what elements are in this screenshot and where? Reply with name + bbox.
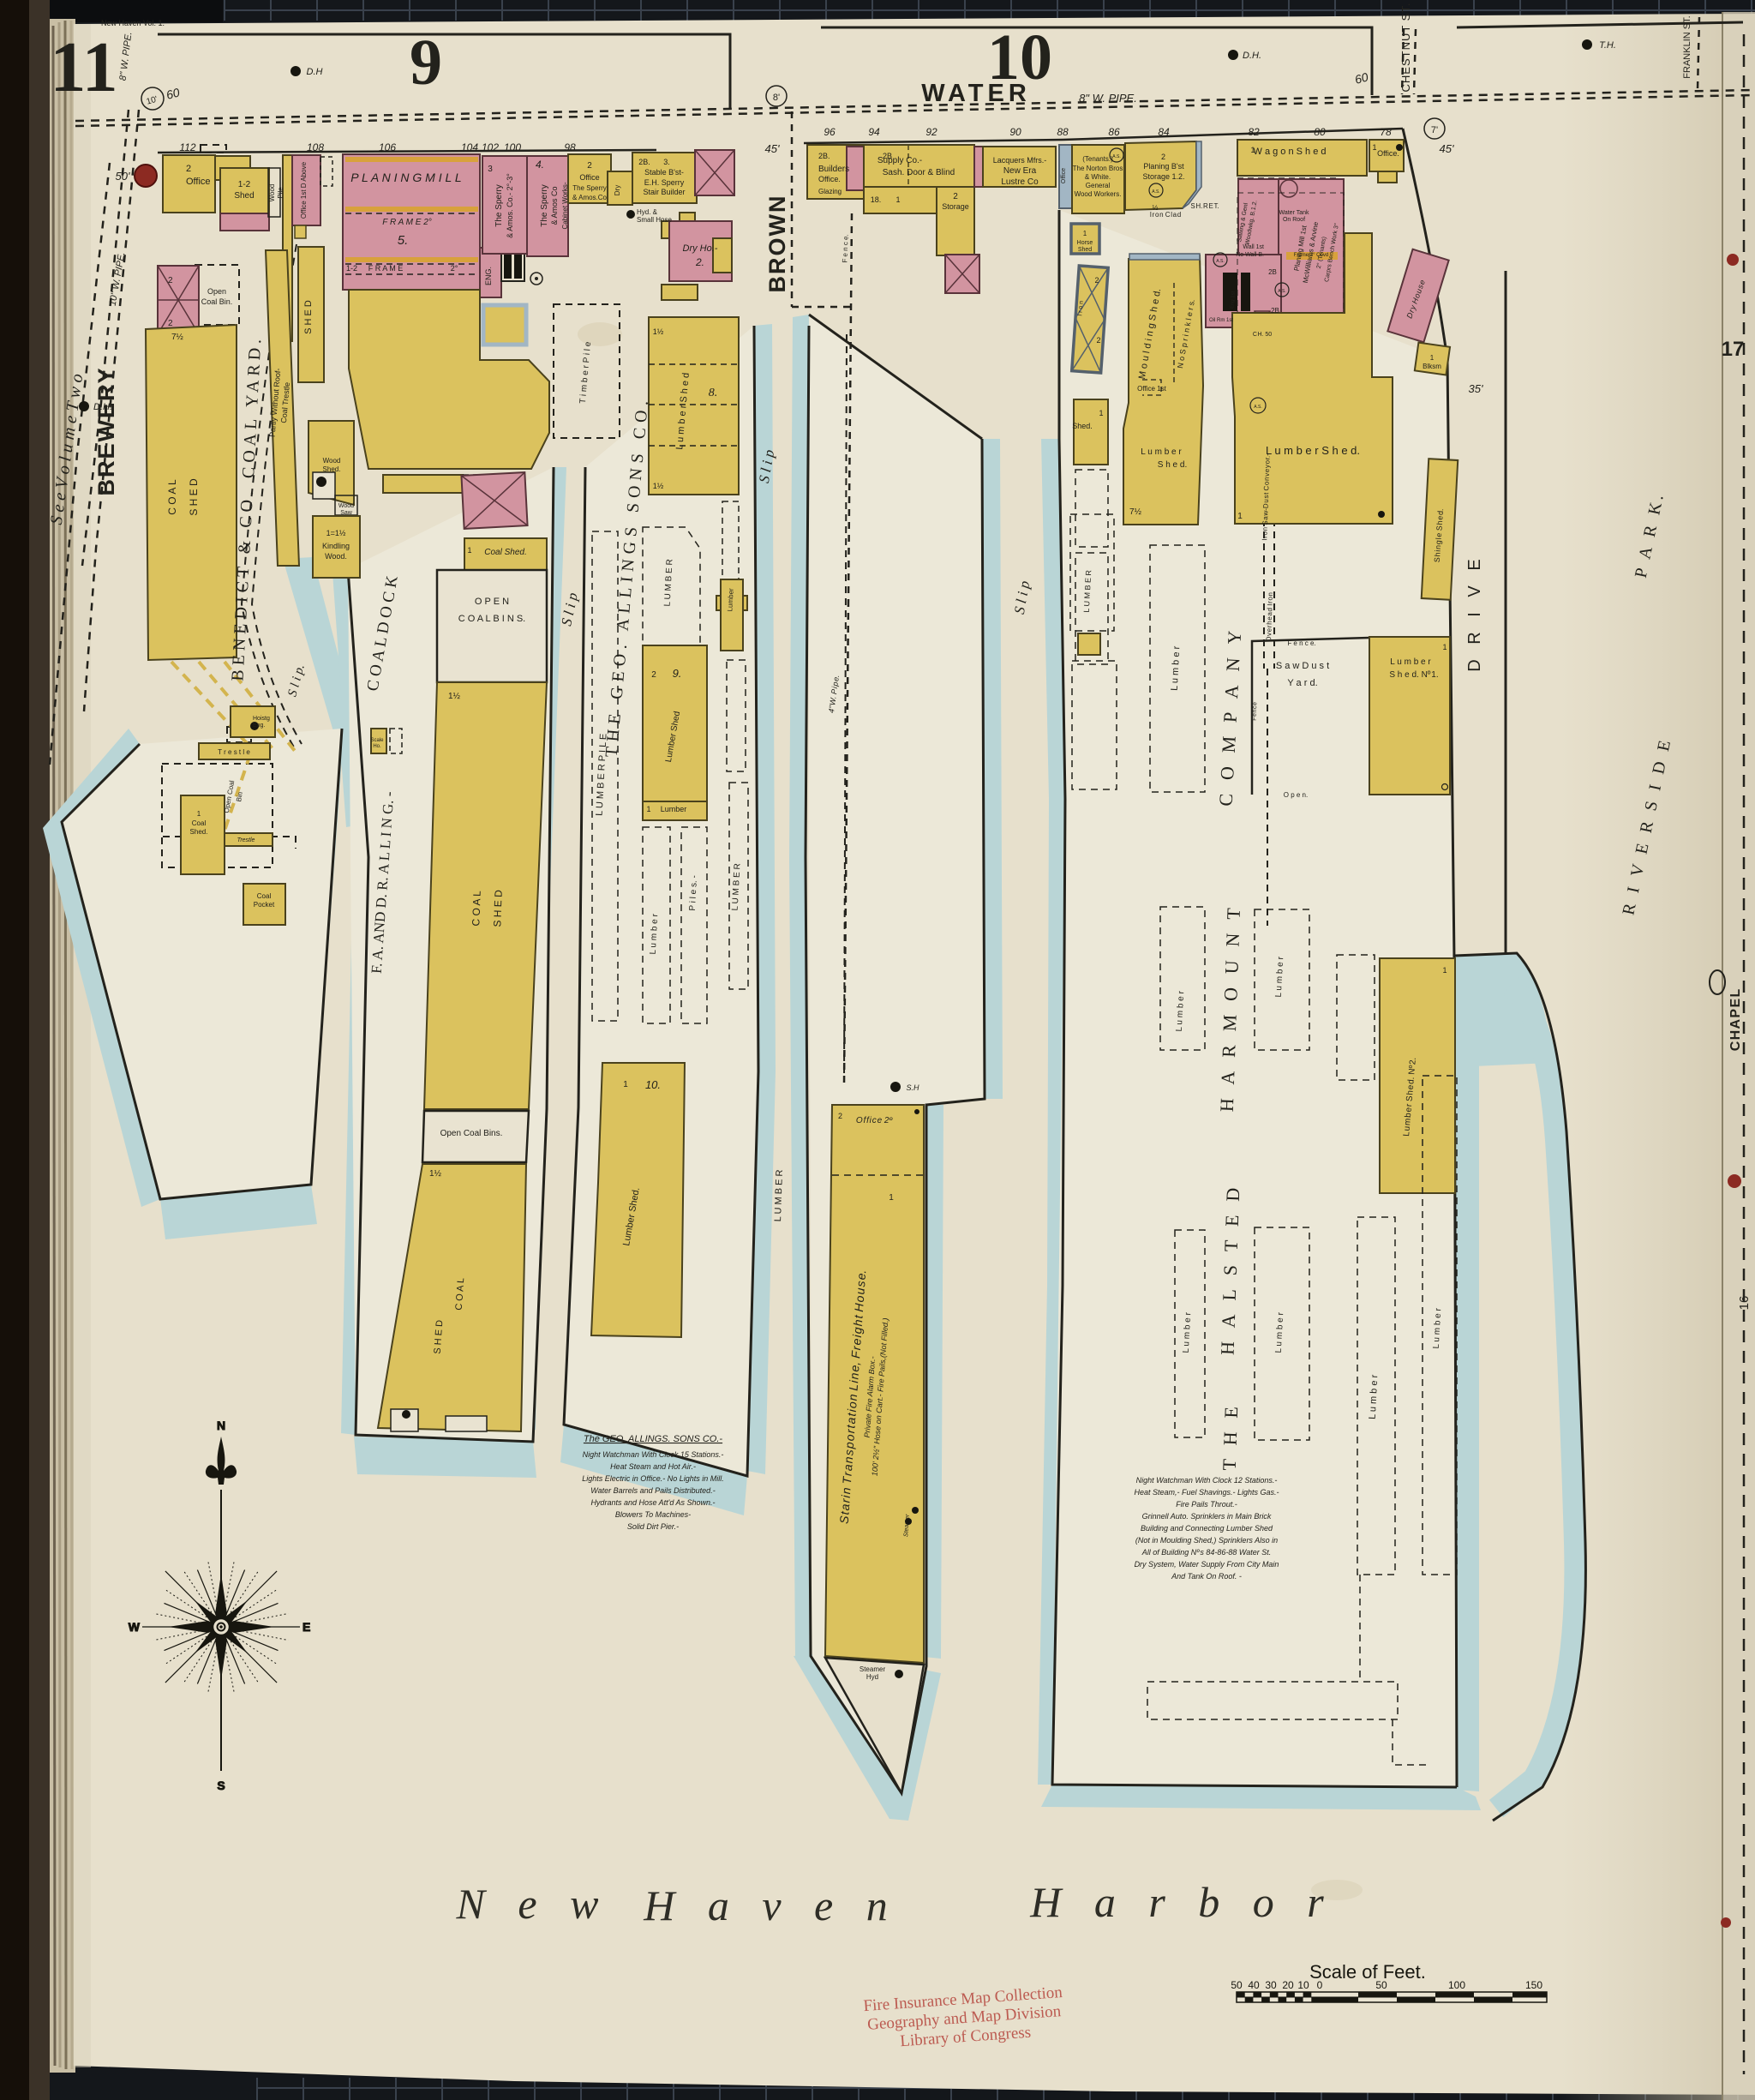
svg-text:Building and Connecting Lumber: Building and Connecting Lumber Shed — [1141, 1524, 1273, 1533]
svg-text:BREWERY: BREWERY — [93, 366, 119, 495]
svg-text:2.: 2. — [695, 256, 704, 268]
svg-text:8': 8' — [773, 93, 780, 103]
svg-text:1: 1 — [623, 1080, 628, 1089]
svg-text:Office 1st D Above: Office 1st D Above — [300, 161, 308, 219]
svg-text:30: 30 — [1265, 1979, 1277, 1991]
svg-text:Wood: Wood — [268, 184, 276, 202]
svg-text:Water Barrels and Pails Distri: Water Barrels and Pails Distributed.- — [590, 1486, 715, 1495]
svg-text:Shed.: Shed. — [190, 828, 208, 836]
svg-text:2: 2 — [168, 276, 173, 285]
svg-text:112: 112 — [179, 141, 195, 153]
svg-text:C O A L: C O A L — [166, 479, 178, 515]
svg-text:Glazing: Glazing — [818, 188, 842, 195]
svg-text:Office.: Office. — [1377, 149, 1399, 158]
svg-text:1½: 1½ — [429, 1169, 442, 1179]
svg-text:1: 1 — [1430, 354, 1435, 362]
svg-text:T r e s t l e: T r e s t l e — [218, 748, 250, 756]
svg-text:82: 82 — [1248, 126, 1260, 138]
svg-text:1: 1 — [1099, 409, 1103, 417]
svg-text:F R A M E: F R A M E — [368, 264, 404, 273]
svg-text:2: 2 — [1161, 153, 1165, 161]
svg-text:100: 100 — [504, 141, 521, 153]
svg-text:(Tenants.): (Tenants.) — [1082, 155, 1113, 163]
svg-text:Shed.: Shed. — [1072, 422, 1093, 430]
svg-text:Horse: Horse — [1077, 240, 1093, 246]
svg-text:C H. 50: C H. 50 — [1253, 332, 1272, 338]
svg-text:Blowers To Machines-: Blowers To Machines- — [615, 1510, 691, 1519]
svg-text:WATER: WATER — [921, 80, 1031, 107]
svg-text:Small Hose: Small Hose — [637, 216, 672, 224]
svg-text:Scale of Feet.: Scale of Feet. — [1309, 1961, 1426, 1983]
svg-text:N e w: N e w — [456, 1880, 610, 1928]
svg-text:E.H. Sperry: E.H. Sperry — [644, 178, 685, 187]
svg-text:94: 94 — [868, 126, 880, 138]
svg-text:(Not in Moulding Shed,) Sprink: (Not in Moulding Shed,) Sprinklers Also … — [1135, 1536, 1278, 1545]
svg-text:Saw: Saw — [340, 510, 353, 516]
svg-text:7': 7' — [1431, 125, 1438, 135]
svg-text:1: 1 — [1442, 643, 1447, 651]
svg-text:Dry: Dry — [614, 185, 621, 195]
svg-text:I r o n C l a d: I r o n C l a d — [1150, 211, 1181, 219]
svg-text:Oil Rm 1st: Oil Rm 1st — [1209, 318, 1233, 323]
svg-text:Shed.: Shed. — [323, 465, 341, 473]
svg-text:Ho.: Ho. — [373, 744, 381, 749]
svg-text:Office.: Office. — [818, 175, 841, 183]
svg-text:Lights Electric in Office.- No: Lights Electric in Office.- No Lights in… — [582, 1474, 724, 1483]
svg-text:4.: 4. — [536, 159, 544, 171]
svg-text:L u m b e r: L u m b e r — [1141, 447, 1182, 457]
svg-text:1: 1 — [1372, 143, 1376, 152]
svg-text:New Era: New Era — [1003, 166, 1037, 176]
svg-text:10: 10 — [1297, 1979, 1309, 1991]
svg-text:Cabinet Works-: Cabinet Works- — [561, 182, 569, 229]
svg-text:Coal Shed.: Coal Shed. — [484, 548, 526, 557]
svg-text:& White.: & White. — [1085, 173, 1111, 181]
svg-text:90: 90 — [1009, 126, 1021, 138]
svg-text:7½: 7½ — [171, 333, 184, 342]
svg-text:O P E N: O P E N — [475, 597, 509, 607]
svg-text:W: W — [129, 1620, 141, 1634]
svg-text:150: 150 — [1525, 1979, 1542, 1991]
svg-text:Shed: Shed — [1078, 247, 1092, 253]
svg-text:A.S.: A.S. — [1278, 289, 1285, 294]
svg-text:On Roof: On Roof — [1283, 217, 1305, 223]
svg-text:3.: 3. — [663, 158, 670, 166]
svg-text:Kindling: Kindling — [322, 542, 350, 550]
svg-text:Eng.: Eng. — [253, 723, 265, 729]
svg-text:Wood: Wood — [338, 503, 354, 509]
svg-text:C O A L B I N S.: C O A L B I N S. — [458, 614, 525, 624]
svg-text:Heat Steam,- Fuel Shavings.- L: Heat Steam,- Fuel Shavings.- Lights Gas.… — [1134, 1488, 1279, 1497]
svg-text:1-2: 1-2 — [346, 264, 357, 273]
svg-text:Blksm: Blksm — [1423, 363, 1441, 370]
svg-text:45': 45' — [765, 142, 780, 155]
svg-text:Hydrants and Hose Att'd As Sho: Hydrants and Hose Att'd As Shown.- — [590, 1498, 715, 1507]
svg-text:S H. R E T.: S H. R E T. — [1190, 202, 1219, 210]
svg-text:A.S.: A.S. — [1254, 405, 1261, 410]
svg-text:BROWN: BROWN — [764, 195, 790, 293]
svg-text:2B.: 2B. — [638, 158, 650, 166]
svg-text:86: 86 — [1108, 126, 1120, 138]
svg-text:Coal Bin.: Coal Bin. — [201, 297, 233, 306]
svg-text:1: 1 — [467, 546, 471, 555]
svg-text:2: 2 — [1096, 336, 1100, 345]
svg-text:2: 2 — [1094, 276, 1099, 285]
svg-text:Builders: Builders — [818, 165, 849, 174]
svg-text:Coal: Coal — [257, 892, 272, 900]
svg-text:1: 1 — [1237, 512, 1243, 521]
svg-text:50': 50' — [116, 170, 130, 183]
svg-text:Planing B'st: Planing B'st — [1143, 162, 1184, 171]
svg-text:2: 2 — [838, 1112, 842, 1120]
svg-text:Sash. Door & Blind: Sash. Door & Blind — [883, 168, 955, 177]
svg-text:S a w D u s t: S a w D u s t — [1276, 661, 1329, 671]
svg-text:8.: 8. — [709, 387, 718, 399]
svg-text:7½: 7½ — [1129, 507, 1142, 517]
svg-text:The Sperry: The Sperry — [540, 184, 549, 226]
svg-text:E: E — [302, 1620, 310, 1634]
svg-text:& Amos. Co.- 2°-3°: & Amos. Co.- 2°-3° — [506, 173, 514, 238]
svg-text:1=1½: 1=1½ — [326, 529, 346, 537]
svg-text:General: General — [1086, 182, 1111, 189]
svg-text:All of Building Nº s 84-86-88: All of Building Nº s 84-86-88 Water St. — [1141, 1548, 1271, 1557]
svg-text:Frame 3° Covd: Frame 3° Covd — [1294, 253, 1328, 258]
svg-text:A.S.: A.S. — [1112, 154, 1120, 159]
svg-text:L u m b e r: L u m b e r — [1390, 657, 1431, 667]
svg-text:108: 108 — [307, 141, 324, 153]
svg-text:1: 1 — [1083, 230, 1087, 237]
svg-text:Office: Office — [579, 173, 599, 182]
svg-text:New Haven Vol. 1.: New Haven Vol. 1. — [101, 19, 165, 27]
svg-text:F e n c e.: F e n c e. — [841, 234, 849, 263]
svg-text:N: N — [217, 1419, 225, 1432]
svg-text:FRANKLIN ST.: FRANKLIN ST. — [1682, 15, 1692, 78]
svg-text:Solid Dirt Pier.-: Solid Dirt Pier.- — [627, 1522, 679, 1531]
svg-text:L U M B E R: L U M B E R — [773, 1169, 785, 1221]
svg-text:ENG.: ENG. — [484, 267, 493, 285]
svg-text:Wood Workers.: Wood Workers. — [1075, 190, 1122, 198]
svg-text:A.S.: A.S. — [1152, 189, 1159, 195]
svg-text:2: 2 — [587, 161, 592, 171]
svg-text:C H A P E L: C H A P E L — [1728, 989, 1743, 1052]
svg-text:2B: 2B — [1271, 307, 1279, 315]
svg-text:1: 1 — [197, 810, 201, 818]
svg-text:96: 96 — [824, 126, 836, 138]
svg-text:The Sperry: The Sperry — [572, 184, 607, 192]
svg-text:Trestle: Trestle — [237, 837, 255, 843]
svg-text:& Amos Co: & Amos Co — [550, 186, 559, 225]
svg-text:Fire Pails Throut.-: Fire Pails Throut.- — [1176, 1500, 1237, 1509]
svg-text:50: 50 — [1231, 1979, 1243, 1991]
svg-text:P L A N I N G M I L L: P L A N I N G M I L L — [350, 171, 461, 184]
svg-text:Lacquers Mfrs.-: Lacquers Mfrs.- — [993, 156, 1047, 165]
svg-text:D.H: D.H — [307, 67, 323, 77]
svg-text:1: 1 — [1442, 966, 1447, 975]
svg-text:1: 1 — [895, 195, 900, 204]
svg-text:S h e d. Nº 1.: S h e d. Nº 1. — [1389, 670, 1438, 680]
svg-text:100: 100 — [1448, 1979, 1465, 1991]
svg-text:S.H: S.H — [906, 1083, 919, 1092]
svg-text:H a r b o r: H a r b o r — [1029, 1878, 1335, 1926]
svg-text:1½: 1½ — [653, 482, 664, 490]
svg-text:2: 2 — [168, 319, 173, 328]
svg-text:40: 40 — [1248, 1979, 1260, 1991]
svg-text:80: 80 — [1314, 126, 1326, 138]
svg-text:104: 104 — [461, 141, 478, 153]
svg-text:Wall 1st: Wall 1st — [1243, 244, 1264, 250]
svg-text:Lumber: Lumber — [726, 588, 734, 612]
svg-text:20: 20 — [1282, 1979, 1294, 1991]
svg-text:Dry System, Water Supply From: Dry System, Water Supply From City Main — [1135, 1560, 1279, 1569]
svg-text:The Sperry: The Sperry — [494, 184, 504, 226]
svg-text:1½: 1½ — [448, 692, 461, 701]
svg-text:Office: Office — [186, 177, 211, 187]
svg-text:O f f i c e 2º: O f f i c e 2º — [856, 1116, 894, 1125]
svg-text:Storage 1.2.: Storage 1.2. — [1142, 172, 1184, 181]
svg-text:C O A L: C O A L — [470, 891, 482, 927]
svg-text:84: 84 — [1158, 126, 1170, 138]
svg-text:45': 45' — [1440, 142, 1454, 155]
svg-text:The Norton Bros: The Norton Bros — [1073, 165, 1123, 172]
svg-text:Shed: Shed — [234, 191, 254, 201]
svg-text:L u m b e r S h e d.: L u m b e r S h e d. — [1266, 444, 1360, 457]
svg-text:102: 102 — [482, 141, 499, 153]
svg-text:78: 78 — [1380, 126, 1392, 138]
svg-text:98: 98 — [564, 141, 576, 153]
svg-text:Open Coal Bins.: Open Coal Bins. — [440, 1129, 503, 1138]
svg-text:F e n c e: F e n c e — [1252, 702, 1259, 721]
svg-text:10.: 10. — [645, 1078, 661, 1091]
svg-text:H a v e n: H a v e n — [643, 1881, 899, 1929]
svg-text:Heat Steam and Hot Air.-: Heat Steam and Hot Air.- — [610, 1462, 696, 1471]
svg-text:S: S — [217, 1779, 225, 1792]
svg-text:88: 88 — [1057, 126, 1069, 138]
svg-text:11: 11 — [50, 27, 117, 107]
svg-text:Scale: Scale — [370, 738, 384, 743]
svg-text:1: 1 — [889, 1193, 894, 1203]
svg-text:9.: 9. — [673, 667, 682, 680]
svg-text:Dry Ho.-: Dry Ho.- — [683, 243, 718, 254]
svg-text:35': 35' — [1469, 382, 1483, 395]
svg-text:T.H.: T.H. — [1599, 40, 1616, 51]
svg-text:Stair Builder: Stair Builder — [643, 188, 685, 196]
svg-text:17: 17 — [1722, 338, 1745, 361]
svg-text:Wood.: Wood. — [325, 552, 347, 561]
svg-text:18.: 18. — [871, 195, 882, 204]
svg-text:1-2: 1-2 — [238, 180, 251, 189]
svg-text:1½: 1½ — [653, 327, 664, 336]
svg-text:D R I V E: D R I V E — [1465, 554, 1484, 671]
svg-text:2B.: 2B. — [818, 152, 830, 160]
svg-text:2°: 2° — [451, 264, 458, 273]
svg-text:Hoistg: Hoistg — [253, 716, 270, 722]
svg-text:D.H.: D.H. — [1243, 51, 1261, 61]
svg-text:Coal: Coal — [192, 819, 207, 827]
svg-text:F R A M E 2°: F R A M E 2° — [382, 218, 432, 227]
svg-text:Y a r d.: Y a r d. — [1287, 678, 1317, 688]
svg-text:F e n c e.: F e n c e. — [1287, 639, 1315, 647]
svg-text:A.S.: A.S. — [1216, 259, 1224, 264]
svg-text:3: 3 — [488, 165, 493, 174]
svg-text:S H E D: S H E D — [303, 300, 314, 334]
svg-text:Office: Office — [1061, 168, 1067, 183]
svg-text:W a g o n S h e d: W a g o n S h e d — [1254, 147, 1327, 157]
svg-text:No Wall B.: No Wall B. — [1236, 252, 1264, 258]
svg-text:9: 9 — [410, 27, 442, 99]
svg-text:S h e d.: S h e d. — [1158, 460, 1187, 470]
svg-text:Night Watchman With Clock 15 S: Night Watchman With Clock 15 Stations.- — [583, 1450, 724, 1459]
svg-text:Water Tank: Water Tank — [1279, 210, 1309, 216]
svg-text:5.: 5. — [398, 233, 409, 248]
svg-text:P i l e s. -: P i l e s. - — [688, 875, 699, 911]
svg-text:Lustre Co: Lustre Co — [1001, 177, 1039, 187]
svg-text:T H E: T H E — [1219, 1401, 1243, 1471]
svg-text:Pile: Pile — [277, 187, 285, 199]
svg-text:92: 92 — [925, 126, 937, 138]
svg-text:Wood: Wood — [323, 457, 341, 465]
svg-text:CHESTNUT ST.: CHESTNUT ST. — [1399, 3, 1412, 93]
svg-text:1: 1 — [646, 805, 650, 813]
svg-text:Steamer: Steamer — [860, 1665, 886, 1673]
svg-text:Hyd. &: Hyd. & — [637, 208, 658, 216]
svg-text:S H E D: S H E D — [491, 890, 505, 927]
svg-text:2: 2 — [186, 164, 191, 174]
svg-text:2B: 2B — [1268, 268, 1277, 276]
svg-text:Lumber: Lumber — [661, 805, 687, 813]
svg-text:2: 2 — [953, 192, 958, 201]
svg-text:Storage: Storage — [942, 202, 969, 211]
svg-text:Night Watchman With Clock 12 S: Night Watchman With Clock 12 Stations.- — [1136, 1476, 1278, 1485]
svg-text:106: 106 — [379, 141, 396, 153]
svg-text:16: 16 — [1737, 1296, 1752, 1311]
svg-text:2: 2 — [651, 670, 656, 680]
svg-text:50: 50 — [1375, 1979, 1387, 1991]
svg-text:Pocket: Pocket — [254, 901, 275, 909]
svg-text:Open: Open — [207, 287, 226, 296]
svg-text:Office 1st: Office 1st — [1137, 385, 1166, 393]
svg-text:Grinnell Auto. Sprinklers in M: Grinnell Auto. Sprinklers in Main Brick — [1142, 1512, 1272, 1521]
svg-text:& Amos.Co: & Amos.Co — [572, 194, 608, 201]
svg-text:8" W. PIPE.: 8" W. PIPE. — [1079, 92, 1137, 105]
svg-text:And Tank On Roof. -: And Tank On Roof. - — [1171, 1572, 1242, 1581]
svg-text:Supply Co.-: Supply Co.- — [877, 156, 922, 165]
svg-text:The GEO. ALLINGS. SONS CO.-: The GEO. ALLINGS. SONS CO.- — [584, 1434, 723, 1444]
svg-text:Hyd: Hyd — [866, 1673, 878, 1681]
svg-text:D.H.: D.H. — [93, 402, 112, 412]
svg-text:O p e n.: O p e n. — [1284, 791, 1308, 799]
svg-text:Stable B'st-: Stable B'st- — [644, 168, 684, 177]
svg-text:S H E D: S H E D — [188, 478, 200, 516]
svg-text:0: 0 — [1317, 1979, 1323, 1991]
